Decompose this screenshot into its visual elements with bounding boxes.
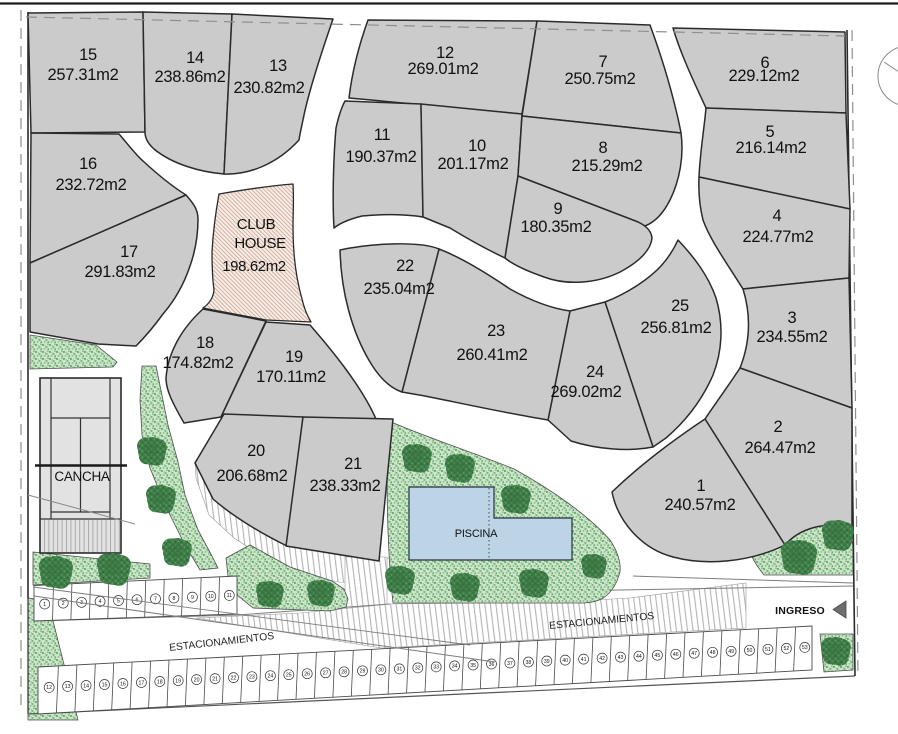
svg-text:3: 3 <box>788 309 797 327</box>
svg-text:9: 9 <box>554 200 563 218</box>
svg-text:260.41m2: 260.41m2 <box>457 346 528 364</box>
svg-text:17: 17 <box>139 680 145 686</box>
svg-text:201.17m2: 201.17m2 <box>438 155 509 173</box>
svg-text:15: 15 <box>79 46 97 64</box>
svg-text:16: 16 <box>120 681 126 687</box>
svg-text:10: 10 <box>468 137 486 155</box>
svg-text:2: 2 <box>774 418 783 436</box>
svg-text:27: 27 <box>323 671 329 677</box>
svg-text:8: 8 <box>599 139 608 157</box>
svg-text:22: 22 <box>231 675 237 681</box>
svg-text:234.55m2: 234.55m2 <box>757 328 828 346</box>
svg-text:18: 18 <box>157 679 163 685</box>
svg-text:29: 29 <box>360 669 366 675</box>
svg-text:28: 28 <box>341 670 347 676</box>
svg-text:10: 10 <box>208 594 214 600</box>
svg-text:45: 45 <box>655 653 661 659</box>
svg-text:291.83m2: 291.83m2 <box>85 263 156 281</box>
svg-text:50: 50 <box>747 648 753 654</box>
svg-text:19: 19 <box>285 348 303 366</box>
svg-text:47: 47 <box>691 651 697 657</box>
svg-text:52: 52 <box>784 646 790 652</box>
svg-text:1: 1 <box>43 602 46 608</box>
svg-text:170.11m2: 170.11m2 <box>256 368 326 386</box>
svg-text:36: 36 <box>489 662 495 668</box>
svg-text:31: 31 <box>397 667 403 673</box>
svg-text:21: 21 <box>344 455 362 473</box>
svg-text:206.68m2: 206.68m2 <box>217 467 288 485</box>
svg-text:9: 9 <box>191 595 194 601</box>
svg-text:25: 25 <box>671 297 689 315</box>
svg-text:7: 7 <box>154 597 157 603</box>
svg-text:8: 8 <box>172 596 175 602</box>
svg-text:12: 12 <box>46 685 52 691</box>
svg-text:PISCINA: PISCINA <box>455 528 498 540</box>
svg-text:14: 14 <box>83 683 89 689</box>
svg-text:17: 17 <box>120 243 138 261</box>
svg-text:53: 53 <box>802 645 808 651</box>
svg-text:269.01m2: 269.01m2 <box>408 60 479 78</box>
svg-text:32: 32 <box>415 666 421 672</box>
svg-text:4: 4 <box>773 207 782 225</box>
svg-text:1: 1 <box>697 477 706 495</box>
svg-text:235.04m2: 235.04m2 <box>364 280 435 298</box>
svg-text:40: 40 <box>562 658 568 664</box>
svg-text:174.82m2: 174.82m2 <box>163 354 234 372</box>
svg-text:24: 24 <box>586 363 604 381</box>
svg-text:198.62m2: 198.62m2 <box>222 258 286 275</box>
svg-text:4: 4 <box>99 599 102 605</box>
svg-text:15: 15 <box>102 682 108 688</box>
svg-text:44: 44 <box>636 654 642 660</box>
svg-text:224.77m2: 224.77m2 <box>743 228 814 246</box>
svg-text:2: 2 <box>62 601 65 607</box>
svg-text:38: 38 <box>526 660 532 666</box>
svg-text:190.37m2: 190.37m2 <box>346 148 417 166</box>
svg-text:CANCHA: CANCHA <box>54 469 110 484</box>
svg-text:7: 7 <box>599 53 608 71</box>
svg-text:11: 11 <box>227 593 232 599</box>
svg-text:229.12m2: 229.12m2 <box>729 67 800 85</box>
svg-text:25: 25 <box>286 673 292 679</box>
svg-text:238.33m2: 238.33m2 <box>310 477 381 495</box>
svg-text:42: 42 <box>599 656 605 662</box>
svg-text:256.81m2: 256.81m2 <box>641 319 712 337</box>
svg-text:26: 26 <box>304 672 310 678</box>
svg-text:216.14m2: 216.14m2 <box>736 139 807 157</box>
svg-text:16: 16 <box>79 155 97 173</box>
svg-text:49: 49 <box>728 649 734 655</box>
svg-text:46: 46 <box>673 652 679 658</box>
svg-text:35: 35 <box>470 663 476 669</box>
svg-text:41: 41 <box>581 657 587 663</box>
svg-text:18: 18 <box>196 334 214 352</box>
svg-text:5: 5 <box>117 598 120 604</box>
svg-text:22: 22 <box>396 257 414 275</box>
svg-text:240.57m2: 240.57m2 <box>665 496 736 514</box>
svg-text:180.35m2: 180.35m2 <box>521 218 592 236</box>
svg-text:13: 13 <box>269 57 287 75</box>
svg-text:238.86m2: 238.86m2 <box>155 68 226 86</box>
svg-text:230.82m2: 230.82m2 <box>234 79 305 97</box>
svg-text:232.72m2: 232.72m2 <box>56 176 127 194</box>
svg-text:34: 34 <box>452 664 458 670</box>
svg-text:21: 21 <box>212 676 218 682</box>
svg-text:CLUB: CLUB <box>237 216 276 233</box>
svg-text:20: 20 <box>194 677 200 683</box>
svg-text:257.31m2: 257.31m2 <box>48 66 119 84</box>
svg-text:215.29m2: 215.29m2 <box>572 157 643 175</box>
svg-text:48: 48 <box>710 650 716 656</box>
svg-text:269.02m2: 269.02m2 <box>551 383 622 401</box>
svg-text:24: 24 <box>268 674 274 680</box>
svg-text:39: 39 <box>544 659 550 665</box>
svg-text:51: 51 <box>765 647 771 653</box>
svg-text:30: 30 <box>378 668 384 674</box>
svg-text:11: 11 <box>374 126 391 144</box>
svg-text:13: 13 <box>65 684 71 690</box>
svg-text:INGRESO: INGRESO <box>775 605 825 617</box>
svg-text:264.47m2: 264.47m2 <box>745 439 816 457</box>
svg-text:23: 23 <box>487 322 505 340</box>
svg-text:14: 14 <box>186 49 204 67</box>
svg-text:HOUSE: HOUSE <box>234 235 286 252</box>
svg-text:43: 43 <box>618 655 624 661</box>
svg-text:33: 33 <box>433 665 439 671</box>
svg-text:23: 23 <box>249 675 255 681</box>
svg-text:20: 20 <box>247 442 265 460</box>
svg-text:37: 37 <box>507 661 513 667</box>
svg-text:250.75m2: 250.75m2 <box>565 70 636 88</box>
svg-text:19: 19 <box>175 678 181 684</box>
